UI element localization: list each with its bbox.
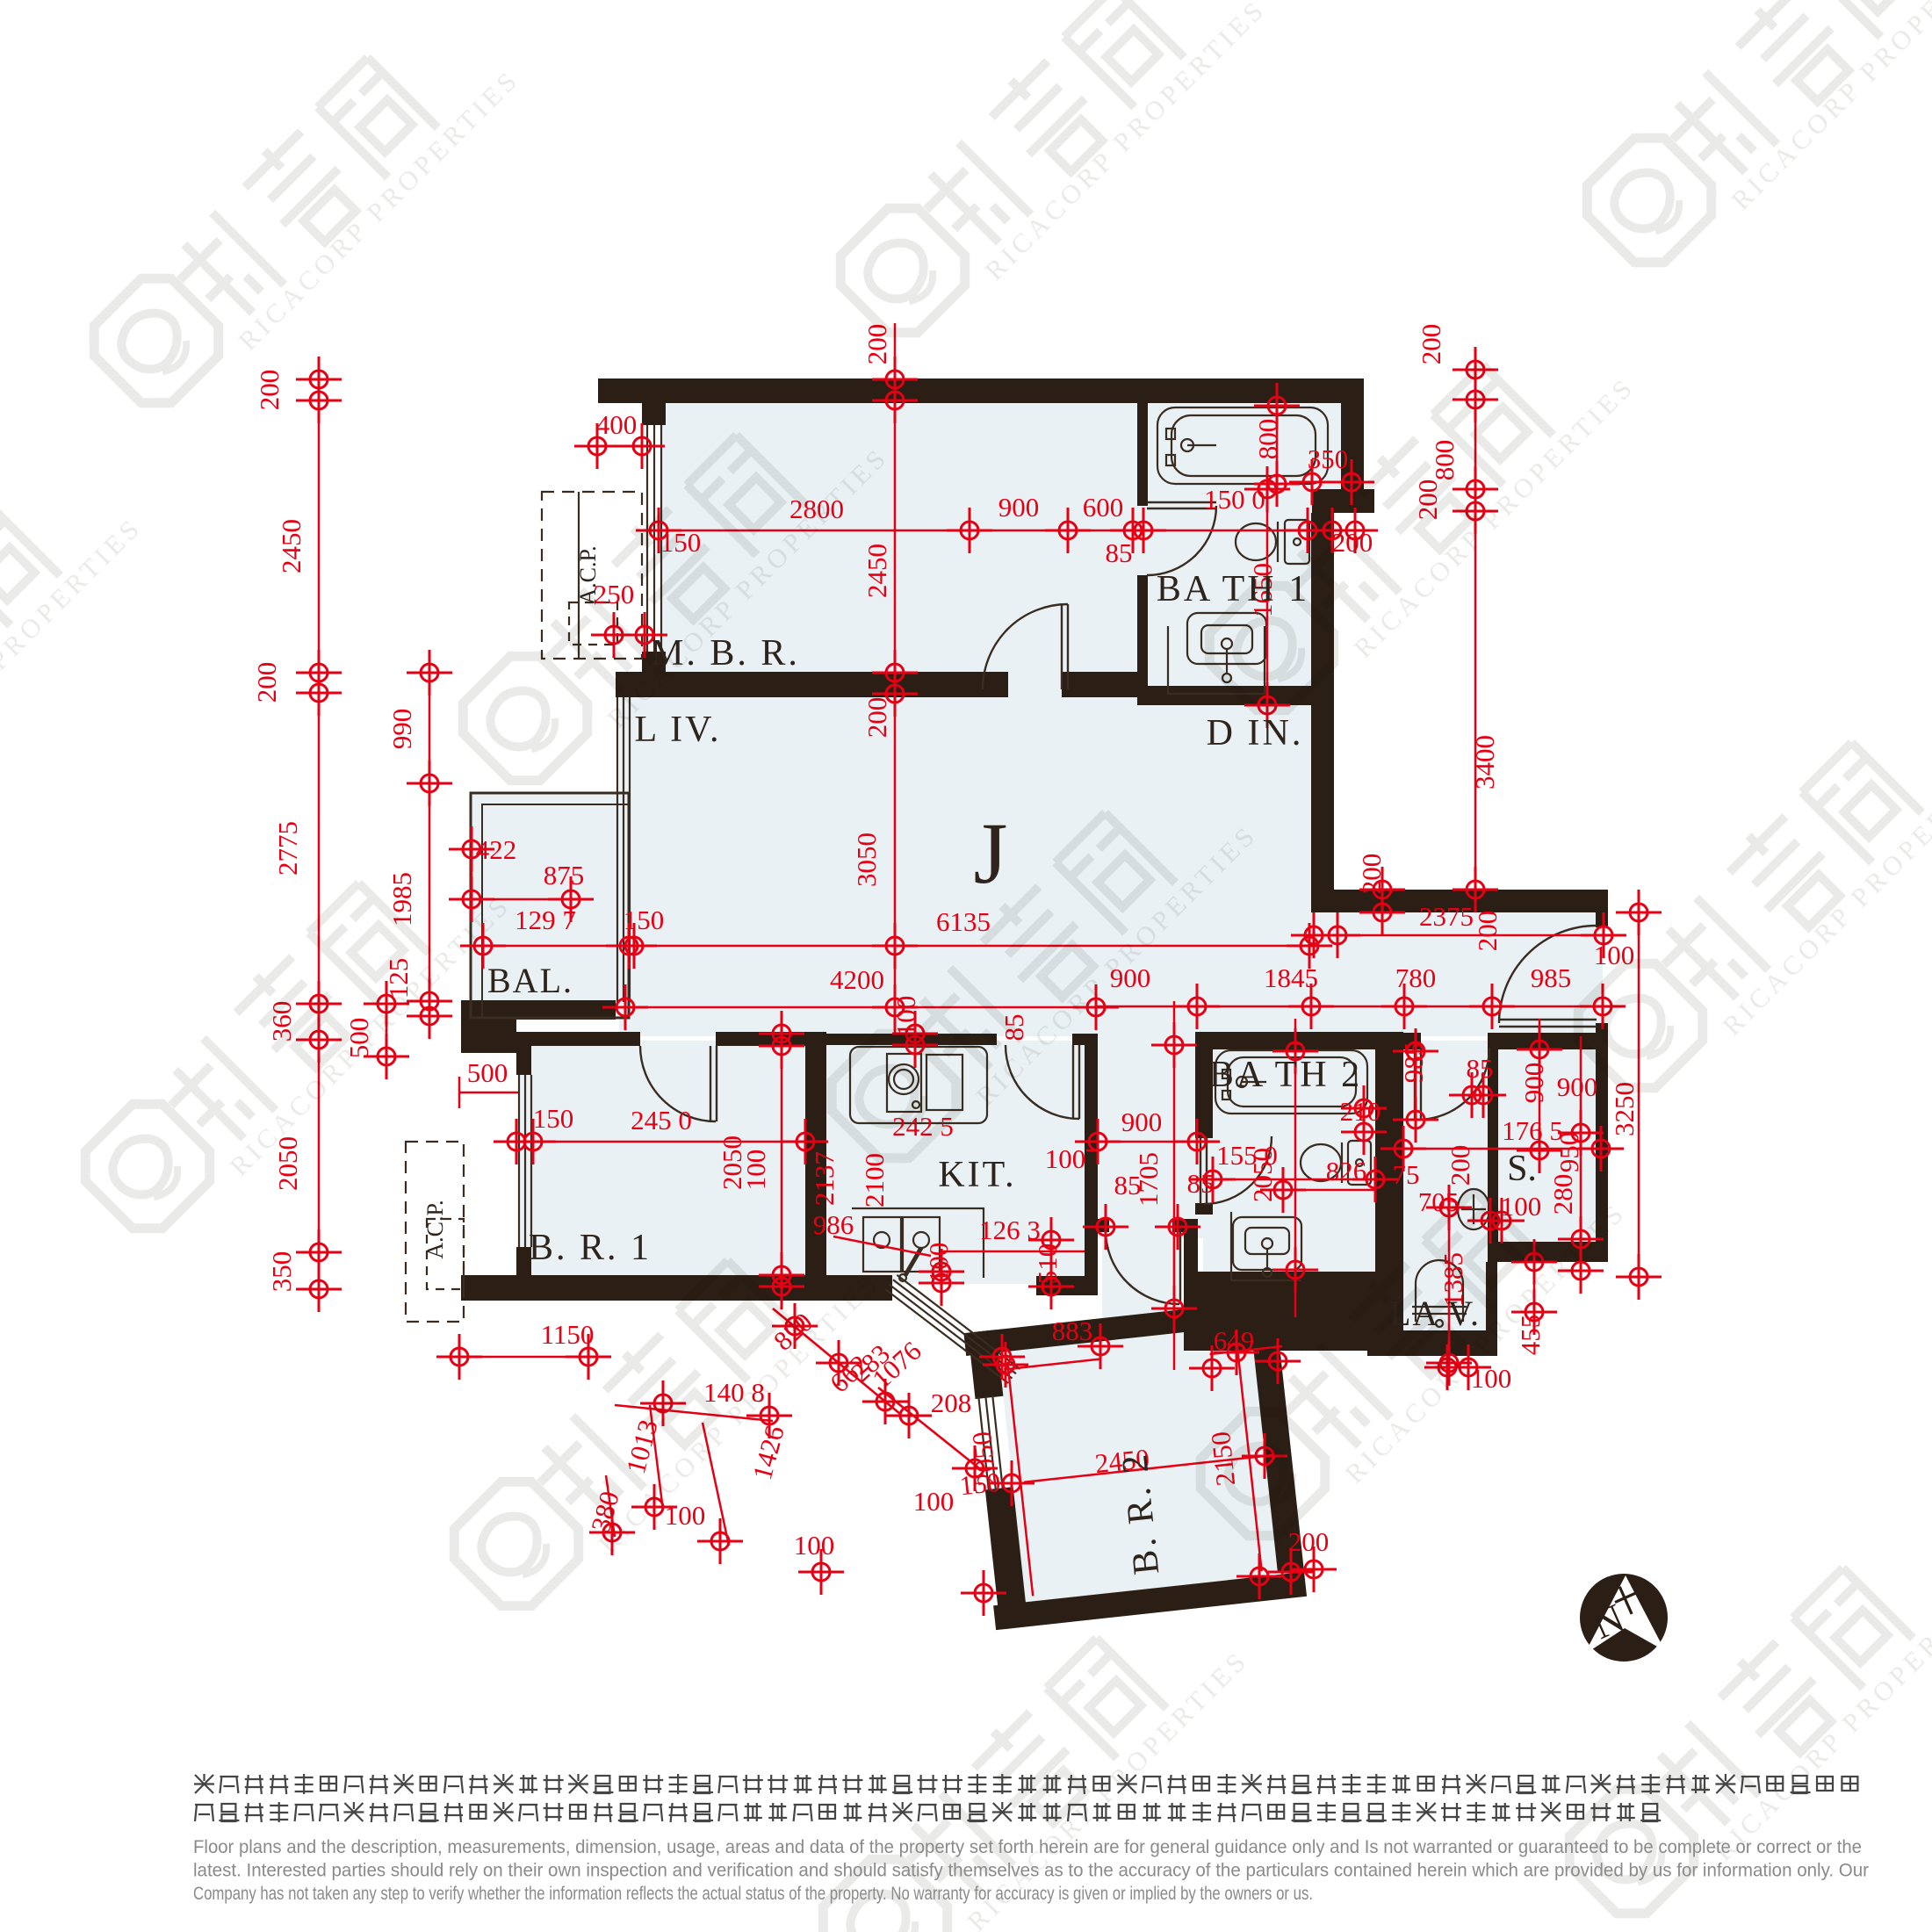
svg-text:200: 200 <box>861 697 892 739</box>
svg-text:208: 208 <box>931 1388 972 1418</box>
svg-text:S.: S. <box>1507 1149 1537 1189</box>
svg-text:129 7: 129 7 <box>515 905 576 935</box>
svg-text:2450: 2450 <box>276 519 306 573</box>
svg-text:Company has not taken any step: Company has not taken any step to verify… <box>193 1884 1313 1904</box>
svg-text:200: 200 <box>1288 1526 1330 1557</box>
svg-text:400: 400 <box>596 409 638 440</box>
svg-text:4200: 4200 <box>830 964 884 995</box>
svg-text:800: 800 <box>1429 440 1460 481</box>
svg-text:600: 600 <box>1083 492 1124 523</box>
svg-text:176 5: 176 5 <box>1502 1115 1563 1146</box>
svg-text:800: 800 <box>1252 419 1283 460</box>
svg-text:150: 150 <box>624 905 665 935</box>
svg-text:3050: 3050 <box>851 833 882 887</box>
svg-text:649: 649 <box>1214 1325 1255 1356</box>
svg-text:200: 200 <box>251 662 282 703</box>
svg-text:2450: 2450 <box>861 544 892 598</box>
svg-text:900: 900 <box>1121 1107 1163 1137</box>
svg-text:210: 210 <box>1340 1096 1381 1127</box>
svg-text:latest. Interested parties sho: latest. Interested parties should rely o… <box>193 1861 1869 1881</box>
svg-text:J: J <box>974 804 1008 902</box>
svg-text:350: 350 <box>266 1251 297 1293</box>
svg-text:A.C.P.: A.C.P. <box>422 1200 448 1258</box>
svg-text:200: 200 <box>254 370 285 411</box>
svg-text:1426: 1426 <box>746 1423 790 1483</box>
svg-text:245 0: 245 0 <box>631 1105 692 1135</box>
svg-text:986: 986 <box>813 1209 854 1240</box>
svg-text:Floor plans and the descriptio: Floor plans and the description, measure… <box>193 1837 1862 1857</box>
svg-text:85: 85 <box>1467 1053 1494 1084</box>
svg-text:780: 780 <box>1395 962 1437 993</box>
svg-text:100: 100 <box>913 1486 955 1517</box>
svg-text:900: 900 <box>1518 1063 1549 1104</box>
svg-text:85: 85 <box>1114 1170 1142 1200</box>
svg-text:100: 100 <box>1501 1191 1542 1222</box>
svg-text:2375: 2375 <box>1419 901 1474 932</box>
svg-text:100: 100 <box>794 1530 835 1561</box>
svg-text:200: 200 <box>1416 324 1446 365</box>
svg-text:2775: 2775 <box>272 821 303 876</box>
svg-text:200: 200 <box>1445 1145 1475 1186</box>
svg-text:KIT.: KIT. <box>938 1155 1016 1195</box>
svg-text:510: 510 <box>1032 1244 1063 1285</box>
svg-text:100: 100 <box>1045 1143 1086 1174</box>
svg-text:826: 826 <box>1326 1156 1367 1186</box>
svg-text:150 0: 150 0 <box>1204 484 1265 515</box>
svg-text:85: 85 <box>1187 1168 1215 1199</box>
svg-text:150: 150 <box>533 1103 574 1134</box>
svg-text:900: 900 <box>1557 1071 1598 1102</box>
svg-text:883: 883 <box>1052 1316 1093 1346</box>
svg-text:200: 200 <box>1356 854 1387 895</box>
svg-text:75: 75 <box>1393 1159 1420 1190</box>
svg-text:85: 85 <box>1106 537 1133 568</box>
svg-text:3400: 3400 <box>1469 735 1500 789</box>
svg-text:2137: 2137 <box>809 1151 840 1206</box>
svg-text:BAL.: BAL. <box>487 961 573 1000</box>
svg-text:100: 100 <box>665 1500 706 1531</box>
svg-text:150: 150 <box>958 1467 1002 1502</box>
svg-text:280: 280 <box>1547 1174 1578 1215</box>
svg-text:D IN.: D IN. <box>1207 713 1304 753</box>
svg-text:900: 900 <box>998 492 1040 523</box>
svg-text:985: 985 <box>1531 962 1572 993</box>
svg-text:126 3: 126 3 <box>979 1215 1041 1245</box>
svg-text:1150: 1150 <box>541 1319 595 1350</box>
svg-text:L IV.: L IV. <box>635 710 722 750</box>
svg-text:2050: 2050 <box>1247 1148 1278 1202</box>
svg-text:BA TH 2: BA TH 2 <box>1209 1055 1362 1095</box>
svg-text:6135: 6135 <box>936 906 991 937</box>
svg-text:350: 350 <box>1308 443 1349 474</box>
svg-text:B. R. 1: B. R. 1 <box>529 1228 652 1268</box>
svg-text:500: 500 <box>467 1057 508 1088</box>
svg-text:990: 990 <box>386 709 417 750</box>
svg-text:100: 100 <box>740 1150 771 1191</box>
svg-text:875: 875 <box>544 860 585 890</box>
svg-text:422: 422 <box>476 834 517 865</box>
svg-text:985: 985 <box>1398 1042 1429 1084</box>
svg-text:200: 200 <box>1472 911 1503 952</box>
svg-text:100: 100 <box>923 1243 954 1284</box>
svg-text:1845: 1845 <box>1264 962 1318 993</box>
